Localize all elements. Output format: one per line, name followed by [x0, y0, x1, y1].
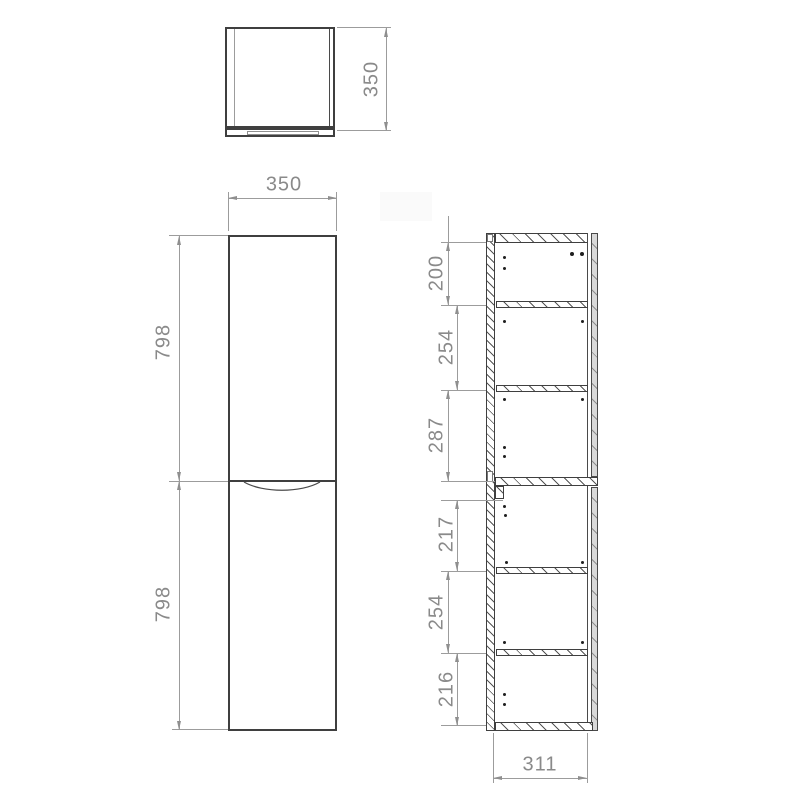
dim-line-front-width — [228, 198, 337, 199]
section-lower-door — [591, 487, 598, 731]
section-upper-door — [591, 233, 598, 477]
dim-label-front-width: 350 — [266, 174, 302, 197]
pin-hole-dot — [503, 267, 506, 270]
section-top-panel — [495, 233, 588, 243]
pin-hole-dot — [503, 455, 506, 458]
pin-hole-dot — [581, 641, 584, 644]
dim-line-upper-door — [179, 236, 180, 481]
section-shelf-4 — [496, 649, 588, 656]
pin-hole-dot — [503, 446, 506, 449]
dim-label-shelf-200: 200 — [426, 255, 449, 291]
section-bottom-panel — [495, 722, 593, 731]
dim-ext-line — [441, 500, 503, 501]
dim-arrow — [446, 242, 450, 251]
dim-label-internal-width: 311 — [523, 754, 558, 777]
section-back-wall — [486, 233, 495, 731]
section-mid-fixed-shelf — [495, 477, 598, 486]
dim-arrow — [177, 721, 181, 730]
dim-arrow — [578, 776, 587, 780]
dim-arrow — [446, 390, 450, 399]
pin-hole-dot — [503, 641, 506, 644]
dim-line-top-depth — [386, 28, 387, 131]
dim-label-shelf-217: 217 — [436, 516, 459, 552]
dim-arrow — [328, 196, 337, 200]
dim-label-top-depth: 350 — [361, 61, 384, 97]
pin-hole-dot — [580, 252, 584, 256]
dim-arrow — [455, 305, 459, 314]
section-shelf-2 — [496, 385, 588, 392]
dim-ext-line — [441, 305, 486, 306]
section-shelf-3 — [496, 567, 588, 574]
dim-arrow — [493, 776, 502, 780]
pin-hole-dot — [503, 398, 506, 401]
dim-arrow — [177, 481, 181, 490]
dim-arrow — [446, 296, 450, 305]
pin-hole-dot — [581, 561, 584, 564]
dim-arrow — [455, 500, 459, 509]
pin-hole-dot — [581, 320, 584, 323]
dim-ext-line — [448, 216, 449, 242]
dim-arrow — [384, 122, 388, 131]
dim-arrow — [455, 717, 459, 726]
dim-ext-line — [337, 130, 391, 131]
section-shelf-1 — [496, 301, 588, 308]
dim-arrow — [177, 236, 181, 245]
dim-arrow — [177, 472, 181, 481]
dim-arrow — [446, 571, 450, 580]
top-view-handle-groove — [247, 131, 319, 135]
pin-hole-dot — [503, 256, 506, 259]
pin-hole-dot — [570, 252, 574, 256]
cabinet-technical-drawing: 350 350 798 798 — [0, 0, 787, 787]
pin-hole-dot — [503, 693, 506, 696]
section-mid-step-bracket — [495, 486, 504, 499]
pin-hole-dot — [503, 320, 506, 323]
dim-arrow — [446, 644, 450, 653]
dim-arrow — [446, 472, 450, 481]
dim-arrow — [228, 196, 237, 200]
dim-label-upper-door: 798 — [153, 324, 176, 360]
dim-ext-line — [587, 733, 588, 783]
pin-hole-dot — [503, 703, 506, 706]
dim-ext-line — [441, 653, 486, 654]
section-top-joint-notch — [487, 234, 493, 242]
dim-arrow — [455, 653, 459, 662]
top-view-hinge-line — [234, 29, 235, 126]
dim-label-shelf-254a: 254 — [436, 329, 459, 365]
dim-line-lower-door — [179, 481, 180, 730]
pin-hole-dot — [504, 514, 507, 517]
dim-arrow — [384, 28, 388, 37]
dim-ext-line — [441, 725, 486, 726]
pin-hole-dot — [503, 505, 506, 508]
top-view-inner-edge-line — [329, 29, 330, 126]
dim-ext-line — [337, 27, 391, 28]
watermark-block — [380, 192, 432, 221]
dim-label-shelf-287: 287 — [426, 417, 449, 453]
dim-line-internal-width — [493, 778, 587, 779]
dim-arrow — [455, 562, 459, 571]
pin-hole-dot — [505, 561, 508, 564]
front-view-handle-curve — [243, 482, 321, 496]
top-view-carcass — [225, 27, 335, 128]
dim-label-lower-door: 798 — [153, 586, 176, 622]
dim-label-shelf-254b: 254 — [426, 594, 449, 630]
dim-label-shelf-216: 216 — [436, 671, 459, 707]
dim-ext-line — [441, 481, 495, 482]
pin-hole-dot — [581, 398, 584, 401]
dim-arrow — [455, 381, 459, 390]
